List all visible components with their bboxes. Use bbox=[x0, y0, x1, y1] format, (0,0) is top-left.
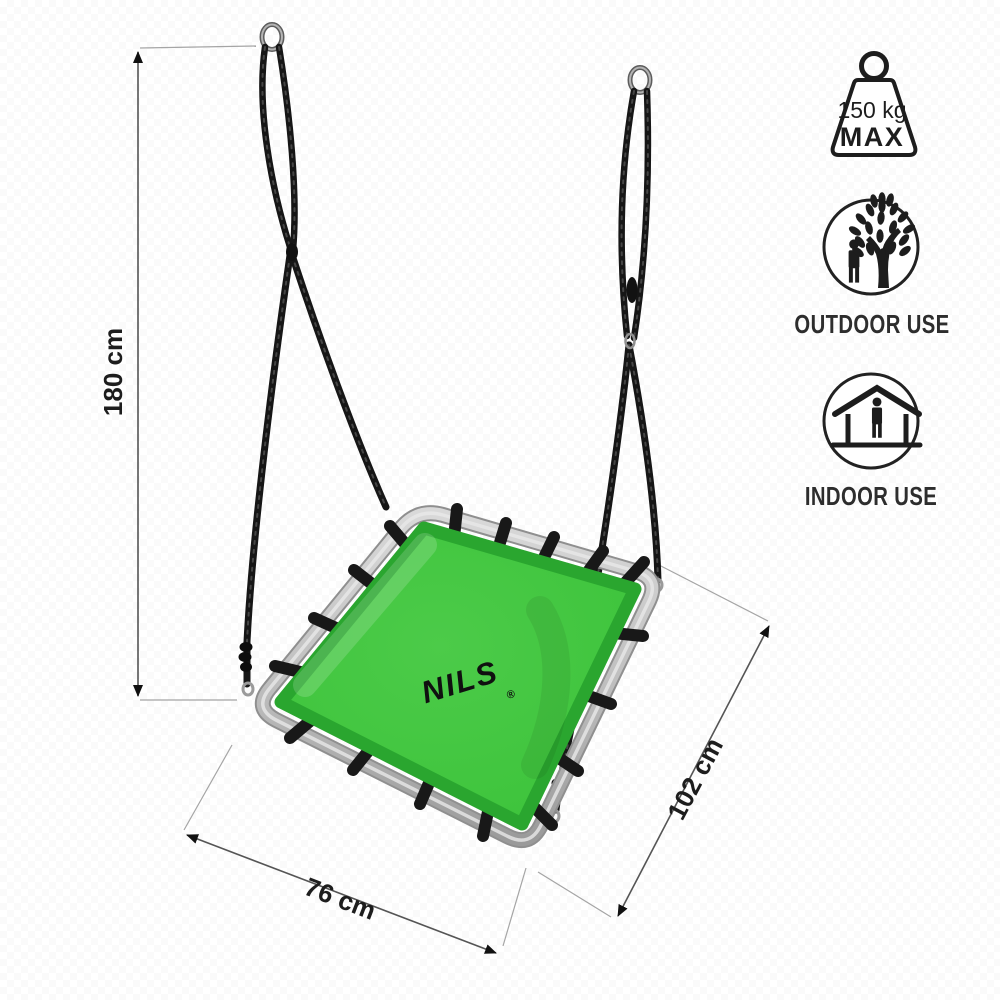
extension-line bbox=[659, 565, 768, 621]
extension-line bbox=[503, 868, 526, 946]
leaf bbox=[878, 199, 885, 213]
width-dimension-label: 76 cm bbox=[300, 871, 380, 925]
rope-knot bbox=[240, 642, 253, 652]
rope-strand bbox=[292, 255, 386, 507]
extension-line bbox=[538, 872, 611, 917]
badge-max-load: 150 kg MAX bbox=[833, 54, 916, 156]
leaf bbox=[876, 229, 883, 243]
indoor-use-label: INDOOR USE bbox=[805, 482, 937, 511]
rope-strand bbox=[247, 255, 290, 684]
badge-outdoor: OUTDOOR USE bbox=[794, 192, 949, 338]
extension-line bbox=[184, 745, 232, 830]
extension-line bbox=[140, 46, 256, 48]
swing-mat: NILS ® bbox=[281, 528, 635, 824]
rope-knot bbox=[286, 243, 298, 261]
length-dimension-label: 102 cm bbox=[661, 733, 729, 825]
max-load-label: MAX bbox=[840, 122, 905, 152]
outdoor-use-label: OUTDOOR USE bbox=[794, 310, 949, 339]
dimension-height: 180 cm bbox=[98, 46, 256, 700]
rope-strand bbox=[629, 345, 658, 580]
rope-knot bbox=[627, 277, 638, 303]
max-load-value: 150 kg bbox=[837, 97, 906, 123]
height-dimension-label: 180 cm bbox=[98, 328, 128, 416]
badge-indoor: INDOOR USE bbox=[805, 374, 937, 511]
product-image-canvas: { "product": { "brand": "NILS", "registe… bbox=[0, 0, 1000, 1000]
swing-dimension-diagram: 180 cm 76 cm 102 cm bbox=[0, 0, 1000, 1000]
